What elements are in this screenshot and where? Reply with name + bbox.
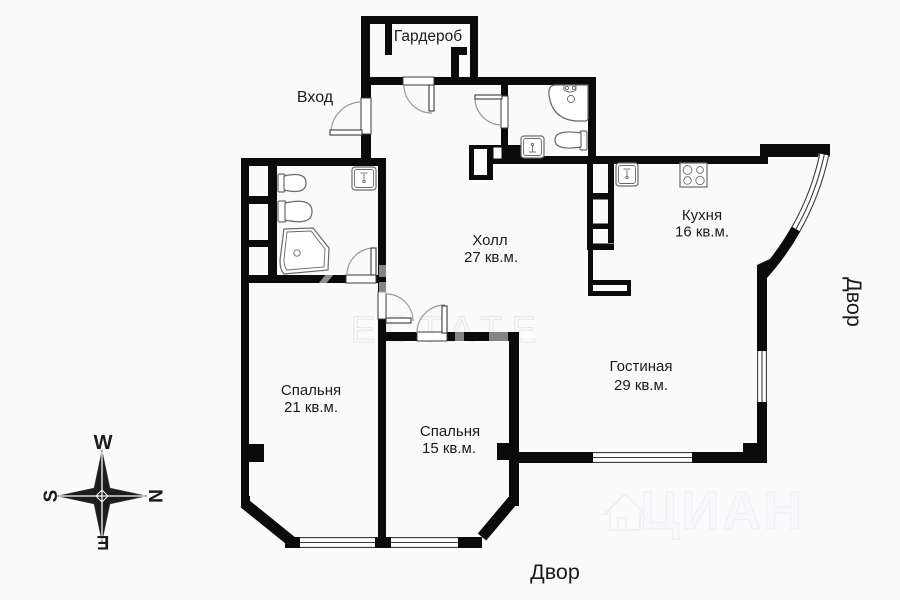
svg-text:Спальня: Спальня (281, 382, 341, 399)
svg-text:29 кв.м.: 29 кв.м. (614, 377, 668, 394)
svg-text:Холл: Холл (472, 232, 507, 249)
svg-text:Кухня: Кухня (682, 207, 722, 224)
svg-text:27 кв.м.: 27 кв.м. (464, 249, 518, 266)
svg-text:E: E (97, 531, 110, 552)
svg-text:S: S (41, 490, 62, 503)
svg-text:Гардероб: Гардероб (394, 28, 462, 45)
svg-text:Вход: Вход (297, 89, 334, 106)
svg-text:21 кв.м.: 21 кв.м. (284, 399, 338, 416)
svg-text:Гостиная: Гостиная (610, 358, 673, 375)
svg-text:W: W (94, 432, 113, 454)
svg-text:Спальня: Спальня (420, 423, 480, 440)
svg-text:16 кв.м.: 16 кв.м. (675, 224, 729, 241)
svg-text:15 кв.м.: 15 кв.м. (422, 440, 476, 457)
svg-text:Двор: Двор (530, 560, 580, 584)
svg-text:ЦИАН: ЦИАН (640, 481, 804, 541)
svg-text:N: N (144, 489, 165, 503)
svg-text:Двор: Двор (842, 277, 866, 327)
